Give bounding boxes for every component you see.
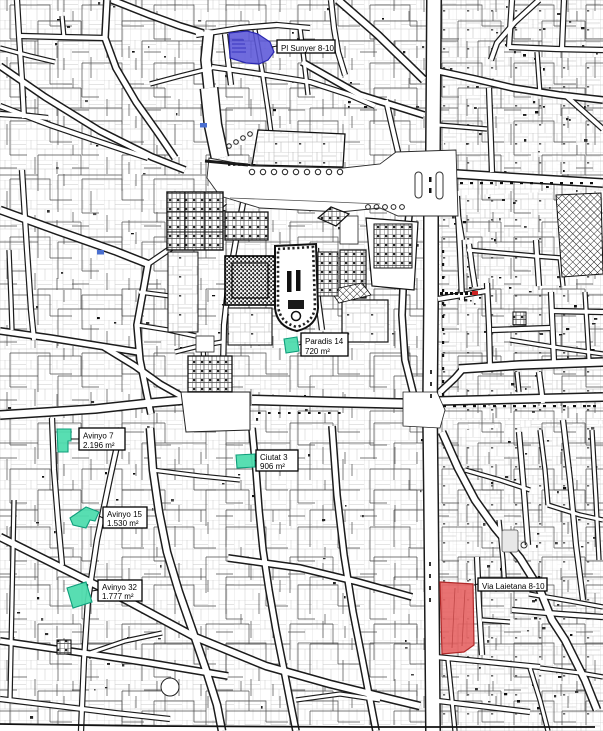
svg-text:1.777 m²: 1.777 m² <box>102 592 134 601</box>
svg-text:Pl Sunyer 8-10: Pl Sunyer 8-10 <box>281 44 334 53</box>
svg-text:Ciutat 3: Ciutat 3 <box>260 453 288 462</box>
svg-text:720 m²: 720 m² <box>305 347 330 356</box>
svg-text:Avinyo 7: Avinyo 7 <box>83 432 114 441</box>
svg-text:Paradis 14: Paradis 14 <box>305 337 344 346</box>
svg-text:Avinyo 15: Avinyo 15 <box>107 510 143 519</box>
svg-text:1.530 m²: 1.530 m² <box>107 519 139 528</box>
svg-text:2.196 m²: 2.196 m² <box>83 441 115 450</box>
svg-text:Via Laietana 8-10: Via Laietana 8-10 <box>482 582 545 591</box>
svg-text:906 m²: 906 m² <box>260 462 285 471</box>
svg-text:Avinyo 32: Avinyo 32 <box>102 583 138 592</box>
